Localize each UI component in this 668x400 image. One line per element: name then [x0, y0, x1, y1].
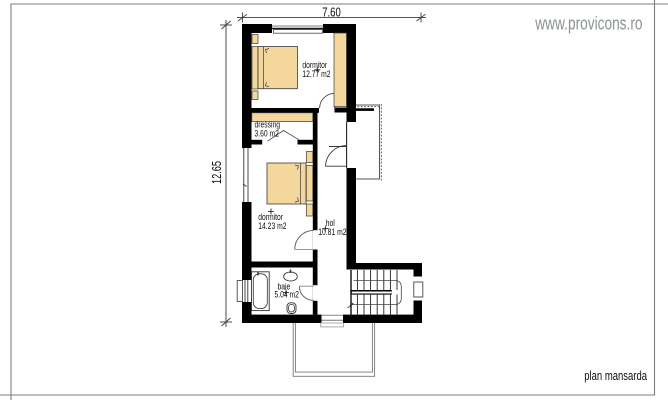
- svg-text:5.04 m2: 5.04 m2: [275, 290, 300, 300]
- svg-text:12.65: 12.65: [211, 161, 225, 184]
- svg-text:14.23 m2: 14.23 m2: [258, 221, 287, 231]
- svg-text:7.60: 7.60: [322, 6, 341, 20]
- svg-text:12.77 m2: 12.77 m2: [302, 69, 331, 79]
- svg-text:www.provicons.ro: www.provicons.ro: [534, 14, 642, 34]
- svg-text:3.60 m2: 3.60 m2: [255, 128, 280, 138]
- svg-text:plan mansarda: plan mansarda: [584, 370, 647, 384]
- svg-text:10.81 m2: 10.81 m2: [318, 227, 347, 237]
